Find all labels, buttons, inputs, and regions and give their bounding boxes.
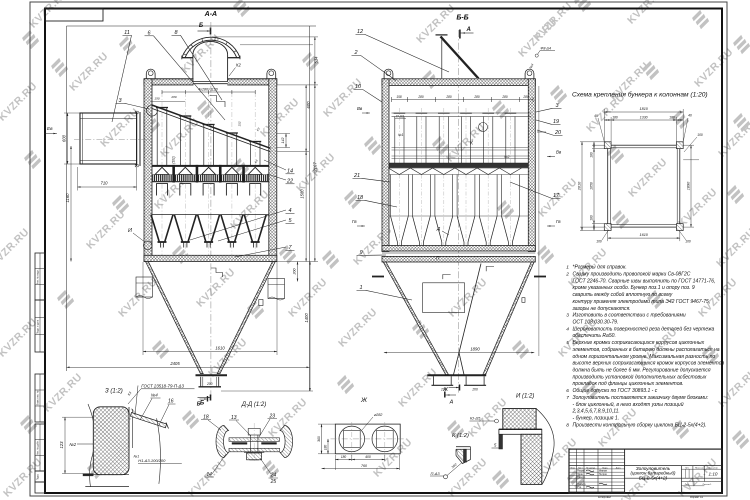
- svg-text:150: 150: [154, 97, 159, 101]
- svg-text:Н1-Δ3-100/200: Н1-Δ3-100/200: [138, 458, 166, 463]
- svg-text:1160: 1160: [65, 193, 70, 203]
- svg-text:Золоуловитель поставляется зак: Золоуловитель поставляется заказчику дву…: [573, 395, 709, 401]
- svg-text:Подп.: Подп.: [602, 467, 608, 469]
- svg-text:4: 4: [566, 326, 569, 332]
- svg-text:ОСТ 108.030.30-79.: ОСТ 108.030.30-79.: [573, 319, 619, 325]
- svg-text:5: 5: [566, 340, 569, 346]
- svg-text:600: 600: [306, 101, 311, 109]
- svg-text:1890: 1890: [470, 346, 480, 351]
- svg-text:200: 200: [471, 387, 478, 391]
- svg-text:Петров: Петров: [599, 474, 607, 476]
- svg-text:Взам. инв. №: Взам. инв. №: [37, 390, 40, 405]
- svg-text:Схема крепления бункера к коло: Схема крепления бункера к колоннам (1:20…: [572, 91, 708, 99]
- svg-text:40: 40: [594, 114, 598, 118]
- svg-text:180: 180: [612, 116, 618, 120]
- svg-text:1810: 1810: [639, 107, 648, 111]
- svg-text:Верхние кромки соприкасающихся: Верхние кромки соприкасающихся корпусов …: [573, 340, 705, 346]
- svg-text:1650: 1650: [590, 182, 594, 190]
- svg-text:Ж: Ж: [360, 397, 368, 404]
- svg-text:7: 7: [566, 395, 569, 401]
- svg-text:2: 2: [565, 271, 569, 277]
- svg-text:Д-Д (1:2): Д-Д (1:2): [241, 402, 266, 408]
- svg-text:180: 180: [669, 116, 675, 120]
- svg-text:8: 8: [566, 422, 569, 428]
- svg-text:сварить между собой вплотную п: сварить между собой вплотную по всему: [573, 291, 673, 298]
- svg-text:прокладок под фланцы циклонных: прокладок под фланцы циклонных элементов…: [573, 381, 684, 387]
- svg-text:- блок циклонный, в него входя: - блок циклонный, в него входят узлы поз…: [573, 401, 684, 408]
- svg-text:Т.контр.: Т.контр.: [577, 477, 586, 479]
- svg-text:760: 760: [361, 464, 367, 468]
- svg-text:100: 100: [685, 240, 691, 244]
- svg-text:Инв. № дубл.: Инв. № дубл.: [37, 440, 40, 455]
- svg-text:К (1:2): К (1:2): [452, 433, 469, 439]
- svg-text:Лист: Лист: [578, 467, 583, 469]
- svg-text:400: 400: [365, 455, 371, 459]
- svg-text:100: 100: [697, 133, 703, 137]
- svg-text:2405: 2405: [169, 361, 180, 366]
- svg-text:Подп. и дата: Подп. и дата: [37, 319, 40, 334]
- svg-text:Б: Б: [197, 402, 201, 408]
- svg-text:16: 16: [168, 398, 174, 404]
- svg-text:1330: 1330: [640, 116, 648, 120]
- svg-text:180: 180: [341, 455, 347, 459]
- svg-text:Н.контр.: Н.контр.: [577, 484, 586, 486]
- svg-text:зазоры не допускаются.: зазоры не допускаются.: [572, 306, 631, 312]
- svg-text:360: 360: [317, 436, 321, 442]
- svg-text:Сварку производить проволокой: Сварку производить проволокой марки Св-0…: [573, 270, 691, 277]
- svg-text:200: 200: [293, 269, 297, 276]
- svg-text:142: 142: [281, 138, 285, 144]
- svg-text:контуру применяя электродами т: контуру применяя электродами типа Э42 ГО…: [573, 299, 711, 305]
- svg-text:2010: 2010: [578, 181, 582, 191]
- svg-text:Утв.: Утв.: [577, 487, 582, 489]
- svg-text:А: А: [466, 27, 471, 33]
- svg-text:ГОСТ 2246-70. Сварные швы выпо: ГОСТ 2246-70. Сварные швы выполнить по Г…: [573, 278, 716, 284]
- svg-text:№2: №2: [504, 155, 510, 159]
- svg-text:- бункер, позиция 1.: - бункер, позиция 1.: [573, 416, 620, 422]
- svg-text:123: 123: [59, 441, 64, 449]
- svg-text:№4: №4: [151, 393, 159, 398]
- svg-text:А: А: [449, 400, 454, 406]
- svg-text:280: 280: [522, 95, 529, 99]
- svg-text:Масса: Масса: [695, 467, 702, 469]
- svg-text:Б-Б: Б-Б: [456, 15, 468, 22]
- svg-text:Лит.: Лит.: [685, 467, 689, 469]
- svg-text:Вв: Вв: [357, 106, 363, 111]
- svg-text:Разраб.: Разраб.: [577, 471, 586, 473]
- svg-text:И (1:2): И (1:2): [516, 394, 534, 400]
- svg-text:Гв: Гв: [556, 219, 561, 224]
- svg-text:Ю-Δ5: Ю-Δ5: [470, 416, 481, 421]
- svg-text:К2: К2: [236, 63, 241, 68]
- svg-text:(102): (102): [172, 156, 176, 163]
- svg-text:высоте верхних соприкасающихся: высоте верхних соприкасающихся кромок ко…: [573, 361, 725, 367]
- svg-text:1: 1: [566, 265, 569, 271]
- svg-text:№1: №1: [398, 133, 404, 137]
- svg-text:кроме указанных особо. Бункер: кроме указанных особо. Бункер поз.1 и оп…: [573, 285, 695, 291]
- svg-text:Инв. № подл.: Инв. № подл.: [37, 269, 40, 284]
- svg-text:Изготовить в соответствии с тр: Изготовить в соответствии с требованиями: [573, 313, 686, 319]
- svg-text:производить установкой дополни: производить установкой дополнительных ас…: [573, 373, 707, 380]
- svg-text:Изм: Изм: [571, 467, 576, 469]
- svg-text:3: 3: [566, 313, 569, 319]
- svg-text:П-Δ3: П-Δ3: [431, 471, 441, 476]
- svg-text:обеспечить Ra50.: обеспечить Ra50.: [573, 333, 616, 339]
- svg-text:З (1:2): З (1:2): [105, 389, 123, 395]
- svg-text:Формат А1: Формат А1: [690, 495, 704, 499]
- svg-text:40: 40: [688, 114, 692, 118]
- svg-text:ГОСТ 23518-79-П-Δ3: ГОСТ 23518-79-П-Δ3: [141, 383, 184, 388]
- svg-text:Общие допуски по ГОСТ 30893.1: Общие допуски по ГОСТ 30893.1 - с: [573, 388, 658, 394]
- svg-text:БЦ-2-5х(4+2): БЦ-2-5х(4+2): [639, 476, 668, 481]
- svg-text:Ев: Ев: [47, 126, 53, 131]
- svg-text:должна быть не более 6 мм. Рег: должна быть не более 6 мм. Регулирование…: [573, 368, 711, 374]
- svg-text:№ докум.: № докум.: [586, 466, 596, 469]
- svg-text:1610: 1610: [215, 346, 225, 351]
- svg-text:Подп.: Подп.: [37, 473, 40, 480]
- svg-text:280: 280: [417, 95, 424, 99]
- svg-text:Копировал: Копировал: [598, 495, 611, 499]
- svg-text:1610: 1610: [639, 233, 648, 237]
- svg-text:Гв: Гв: [352, 219, 357, 224]
- svg-text:№2: №2: [69, 442, 77, 447]
- svg-text:Шероховатость поверхностей рез: Шероховатость поверхностей реза деталей …: [573, 325, 715, 332]
- svg-text:Иванов: Иванов: [599, 471, 608, 473]
- svg-text:Произвести контрольную сборку: Произвести контрольную сборку циклона БЦ…: [573, 422, 707, 428]
- svg-text:2,3,4,5,6,7,8,9,10,11.: 2,3,4,5,6,7,8,9,10,11.: [572, 409, 620, 415]
- svg-text:280: 280: [170, 95, 176, 99]
- svg-text:280: 280: [473, 95, 480, 99]
- svg-text:Дата: Дата: [616, 467, 622, 469]
- svg-text:одном горизонтальном уровне. М: одном горизонтальном уровне. Максимальна…: [573, 354, 716, 360]
- svg-text:*Размеры для справок.: *Размеры для справок.: [573, 265, 627, 271]
- svg-text:180: 180: [590, 152, 594, 158]
- svg-text:600: 600: [62, 134, 67, 142]
- svg-text:534: 534: [313, 56, 318, 64]
- svg-text:100: 100: [596, 240, 602, 244]
- svg-text:⌀282: ⌀282: [374, 413, 384, 417]
- svg-text:И: И: [128, 228, 132, 234]
- svg-text:158: 158: [396, 95, 402, 99]
- svg-text:6: 6: [566, 388, 569, 394]
- svg-text:1890: 1890: [687, 181, 691, 190]
- svg-text:Ф8-Δ4: Ф8-Δ4: [541, 47, 551, 51]
- svg-text:152: 152: [238, 121, 242, 126]
- svg-text:180: 180: [323, 445, 327, 451]
- svg-text:1:10: 1:10: [709, 472, 718, 477]
- svg-text:200: 200: [206, 382, 213, 386]
- svg-text:1400: 1400: [304, 313, 309, 323]
- svg-text:1580: 1580: [300, 189, 305, 199]
- svg-text:А-А: А-А: [204, 11, 217, 18]
- svg-text:25: 25: [270, 479, 277, 485]
- svg-text:2167: 2167: [312, 162, 317, 173]
- svg-text:280: 280: [445, 95, 452, 99]
- svg-text:элементов, собранных в батарею: элементов, собранных в батарею должны ра…: [573, 347, 720, 353]
- svg-text:Пров.: Пров.: [577, 474, 583, 476]
- svg-text:710: 710: [101, 181, 109, 186]
- svg-text:Вв: Вв: [556, 150, 562, 155]
- svg-text:Масштаб: Масштаб: [708, 467, 718, 469]
- svg-text:180: 180: [590, 215, 594, 221]
- svg-text:280: 280: [501, 95, 508, 99]
